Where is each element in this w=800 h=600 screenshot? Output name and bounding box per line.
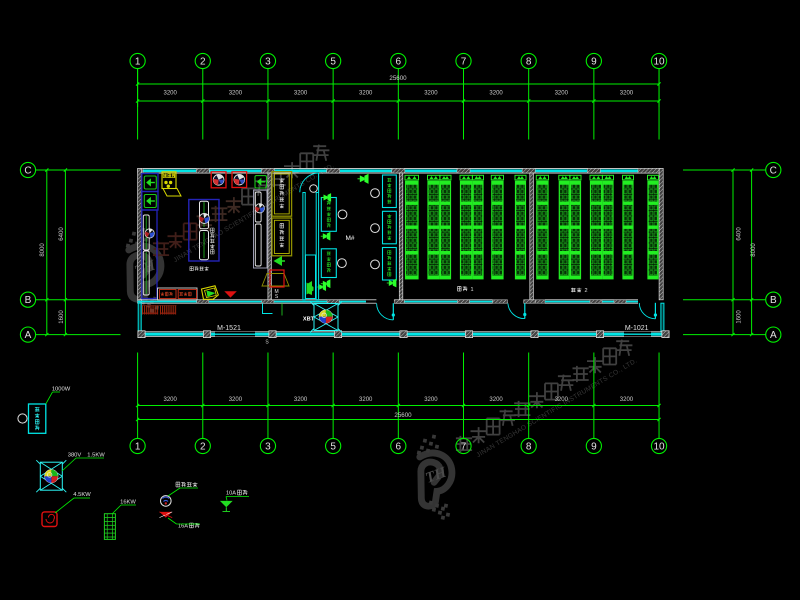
svg-text:10: 10 [653,57,665,68]
svg-text:3200: 3200 [489,91,503,97]
svg-text:8000: 8000 [751,243,757,257]
svg-text:2: 2 [584,288,587,294]
svg-text:3200: 3200 [294,397,308,403]
svg-text:M-1521: M-1521 [217,325,241,332]
svg-text:M-1021: M-1021 [625,325,649,332]
svg-text:10: 10 [653,442,665,453]
svg-text:5: 5 [330,57,336,68]
svg-text:5: 5 [330,442,336,453]
svg-text:25600: 25600 [389,75,407,82]
svg-text:16A: 16A [178,524,188,530]
svg-text:2: 2 [200,442,206,453]
svg-text:1600: 1600 [59,310,65,324]
svg-text:3200: 3200 [620,91,634,97]
svg-text:1600: 1600 [737,310,743,324]
svg-text:3200: 3200 [294,91,308,97]
svg-text:6: 6 [396,57,402,68]
svg-text:3200: 3200 [164,397,178,403]
svg-text:380V: 380V [68,452,82,458]
svg-text:1: 1 [135,442,141,453]
svg-text:8: 8 [526,57,532,68]
svg-text:3200: 3200 [229,397,243,403]
svg-text:3: 3 [265,442,271,453]
svg-text:1: 1 [470,287,473,293]
svg-text:8000: 8000 [40,243,46,257]
svg-text:25600: 25600 [394,412,412,419]
svg-text:10A: 10A [226,491,236,497]
svg-text:9: 9 [591,442,597,453]
svg-text:M#: M# [345,235,354,242]
svg-text:3200: 3200 [359,397,373,403]
svg-text:7: 7 [461,57,467,68]
svg-text:6400: 6400 [59,227,65,241]
svg-text:1: 1 [135,57,141,68]
svg-text:1.5KW: 1.5KW [87,452,105,458]
svg-text:C: C [770,166,777,177]
svg-text:B: B [25,295,32,306]
svg-text:6400: 6400 [737,227,743,241]
svg-text:A: A [770,330,777,341]
svg-text:3200: 3200 [424,91,438,97]
svg-text:3200: 3200 [489,397,503,403]
svg-text:1000W: 1000W [52,386,71,392]
svg-text:9: 9 [591,57,597,68]
svg-text:3200: 3200 [424,397,438,403]
svg-text:7: 7 [461,442,467,453]
svg-text:C: C [24,166,31,177]
svg-text:B: B [770,295,777,306]
svg-text:2: 2 [200,57,206,68]
svg-text:3200: 3200 [555,397,569,403]
svg-text:3200: 3200 [555,91,569,97]
svg-text:3200: 3200 [359,91,373,97]
svg-text:4.5KW: 4.5KW [73,492,91,498]
svg-text:6: 6 [396,442,402,453]
svg-text:3: 3 [265,57,271,68]
svg-text:3200: 3200 [229,91,243,97]
svg-text:3200: 3200 [164,91,178,97]
svg-text:XBT: XBT [303,317,315,323]
svg-text:8: 8 [526,442,532,453]
svg-text:A: A [25,330,32,341]
svg-text:3200: 3200 [620,397,634,403]
